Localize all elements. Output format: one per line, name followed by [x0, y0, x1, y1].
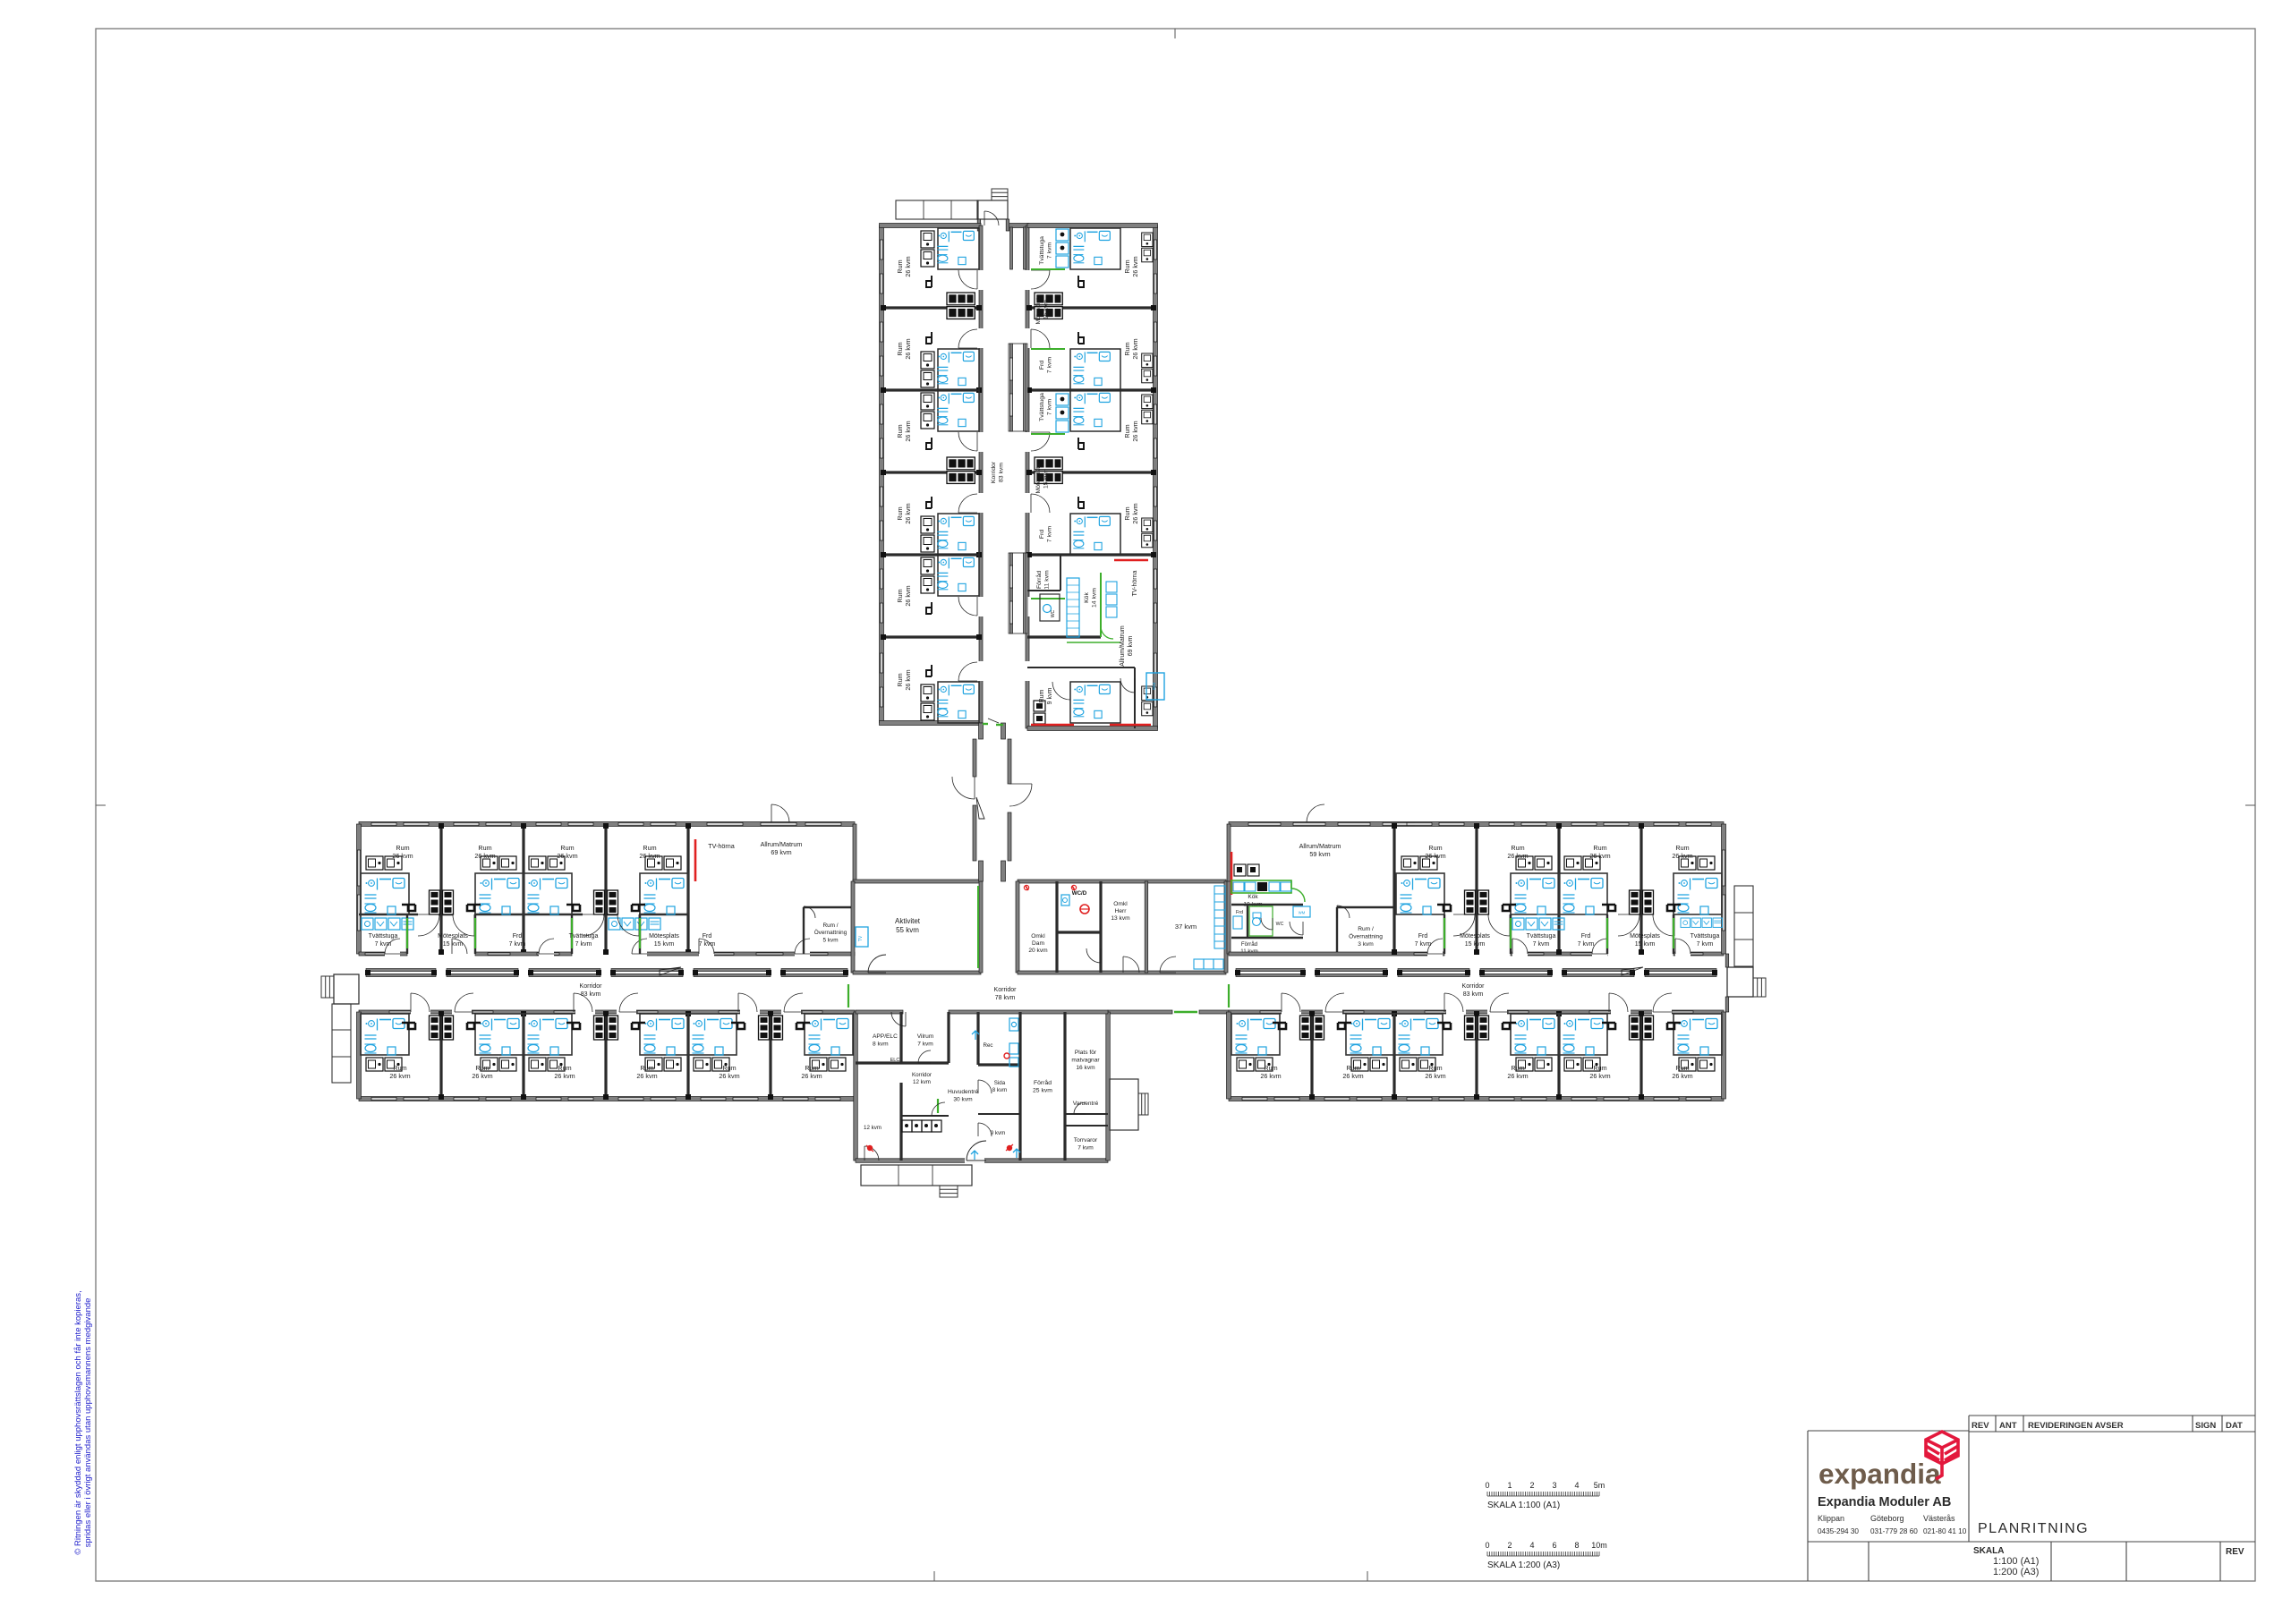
- svg-text:Omkl: Omkl: [1031, 933, 1045, 940]
- svg-text:Frd: Frd: [1581, 933, 1591, 940]
- svg-text:Rum: Rum: [560, 844, 574, 852]
- svg-text:8: 8: [1574, 1541, 1579, 1550]
- svg-text:Herr: Herr: [1115, 908, 1128, 914]
- svg-text:Korridor: Korridor: [994, 987, 1018, 993]
- svg-text:2: 2: [1507, 1541, 1512, 1550]
- svg-text:WC: WC: [1051, 609, 1056, 617]
- svg-text:Plats för: Plats för: [1075, 1050, 1097, 1056]
- svg-text:Rum: Rum: [896, 589, 904, 602]
- svg-text:83 kvm: 83 kvm: [581, 991, 601, 998]
- svg-text:15 kvm: 15 kvm: [1635, 941, 1656, 948]
- svg-text:Mötesplats: Mötesplats: [1460, 933, 1490, 940]
- svg-text:26 kvm: 26 kvm: [904, 256, 912, 276]
- svg-text:Rum: Rum: [1428, 1064, 1442, 1072]
- svg-text:Rum: Rum: [640, 1064, 653, 1072]
- svg-text:Torrvaror: Torrvaror: [1074, 1137, 1098, 1144]
- svg-text:26 kvm: 26 kvm: [1589, 852, 1610, 860]
- svg-text:15 kvm: 15 kvm: [654, 941, 675, 948]
- svg-text:7 kvm: 7 kvm: [1047, 399, 1053, 415]
- svg-text:Mötesplats: Mötesplats: [1035, 294, 1042, 324]
- svg-text:26 kvm: 26 kvm: [392, 852, 413, 860]
- svg-text:Förråd: Förråd: [1034, 1079, 1052, 1086]
- svg-text:26 kvm: 26 kvm: [1342, 1072, 1363, 1080]
- svg-text:Vilrum: Vilrum: [917, 1033, 934, 1040]
- svg-text:26 kvm: 26 kvm: [636, 1072, 657, 1080]
- svg-text:26 kvm: 26 kvm: [554, 1072, 575, 1080]
- svg-text:Rum: Rum: [1123, 342, 1131, 355]
- svg-text:Allrum/Matrum: Allrum/Matrum: [1120, 625, 1126, 667]
- svg-text:Varuentré: Varuentré: [1073, 1101, 1099, 1107]
- svg-text:26 kvm: 26 kvm: [1131, 338, 1139, 359]
- svg-text:26 kvm: 26 kvm: [389, 1072, 410, 1080]
- svg-text:Korridor: Korridor: [1462, 983, 1486, 990]
- svg-text:30 kvm: 30 kvm: [953, 1097, 973, 1103]
- svg-text:WM: WM: [1299, 911, 1306, 915]
- svg-text:SKALA 1:100 (A1): SKALA 1:100 (A1): [1487, 1501, 1560, 1510]
- svg-text:Rum: Rum: [896, 342, 904, 355]
- svg-text:Rum: Rum: [1511, 844, 1524, 852]
- svg-text:Rec: Rec: [983, 1042, 992, 1049]
- svg-text:SKALA: SKALA: [1973, 1546, 2004, 1556]
- svg-text:Rum: Rum: [396, 844, 409, 852]
- svg-text:83 kvm: 83 kvm: [999, 463, 1005, 482]
- svg-text:Korridor: Korridor: [991, 461, 997, 483]
- svg-text:3 kvm: 3 kvm: [1358, 941, 1374, 948]
- svg-text:10m: 10m: [1591, 1541, 1607, 1550]
- svg-text:Förråd: Förråd: [1241, 941, 1258, 948]
- svg-text:WC/D: WC/D: [1072, 890, 1087, 897]
- svg-text:1: 1: [1507, 1481, 1512, 1490]
- svg-text:Rum: Rum: [1123, 506, 1131, 520]
- svg-text:15 kvm: 15 kvm: [1043, 300, 1050, 319]
- svg-text:26 kvm: 26 kvm: [1425, 852, 1445, 860]
- svg-text:26 kvm: 26 kvm: [557, 852, 577, 860]
- svg-text:Allrum/Matrum: Allrum/Matrum: [1299, 842, 1341, 850]
- svg-text:25 kvm: 25 kvm: [1033, 1088, 1052, 1094]
- svg-text:Rum: Rum: [478, 844, 491, 852]
- svg-text:0: 0: [1485, 1541, 1489, 1550]
- svg-text:Frd: Frd: [1418, 933, 1428, 940]
- svg-text:26 kvm: 26 kvm: [904, 421, 912, 441]
- svg-text:15 kvm: 15 kvm: [443, 941, 464, 948]
- svg-text:4: 4: [1574, 1481, 1579, 1490]
- svg-text:Aktivitet: Aktivitet: [895, 917, 921, 925]
- svg-text:26 kvm: 26 kvm: [1672, 852, 1692, 860]
- svg-text:12 kvm: 12 kvm: [864, 1125, 881, 1131]
- svg-text:Expandia Moduler AB: Expandia Moduler AB: [1818, 1495, 1951, 1509]
- svg-text:Rum: Rum: [1675, 844, 1689, 852]
- svg-text:REV: REV: [1972, 1421, 1989, 1431]
- svg-text:Rum: Rum: [896, 506, 904, 520]
- svg-text:031-779 28 60: 031-779 28 60: [1870, 1527, 1918, 1535]
- svg-text:26 kvm: 26 kvm: [719, 1072, 739, 1080]
- svg-text:14 kvm: 14 kvm: [1092, 588, 1098, 608]
- svg-text:26 kvm: 26 kvm: [1131, 421, 1139, 441]
- svg-text:2: 2: [1529, 1481, 1534, 1490]
- svg-text:Tvättstuga: Tvättstuga: [1039, 236, 1045, 265]
- svg-text:REV: REV: [2226, 1547, 2244, 1557]
- svg-text:Rum: Rum: [1593, 844, 1606, 852]
- svg-text:TV-hörna: TV-hörna: [1132, 570, 1138, 596]
- svg-text:Rum: Rum: [1346, 1064, 1359, 1072]
- svg-text:26 kvm: 26 kvm: [1131, 256, 1139, 276]
- svg-text:7 kvm: 7 kvm: [1077, 1145, 1094, 1152]
- svg-text:Frd: Frd: [1236, 910, 1243, 915]
- svg-text:37 kvm: 37 kvm: [1175, 923, 1197, 931]
- svg-text:3: 3: [1552, 1481, 1556, 1490]
- svg-text:Rum: Rum: [896, 424, 904, 438]
- svg-text:Tvättstuga: Tvättstuga: [569, 933, 599, 940]
- svg-text:26 kvm: 26 kvm: [1425, 1072, 1445, 1080]
- svg-text:26 kvm: 26 kvm: [904, 585, 912, 606]
- svg-text:7 kvm: 7 kvm: [1047, 526, 1053, 542]
- svg-text:SIGN: SIGN: [2195, 1421, 2216, 1431]
- svg-text:11 kvm: 11 kvm: [1044, 570, 1051, 590]
- svg-text:Rum: Rum: [1511, 1064, 1524, 1072]
- svg-text:6: 6: [1552, 1541, 1556, 1550]
- svg-text:69 kvm: 69 kvm: [1128, 636, 1134, 657]
- svg-text:TV-hörna: TV-hörna: [708, 842, 735, 850]
- svg-text:Frd: Frd: [1039, 361, 1045, 370]
- svg-text:Rum: Rum: [896, 259, 904, 273]
- svg-text:Sida: Sida: [994, 1080, 1006, 1086]
- svg-text:Rum /: Rum /: [822, 923, 838, 929]
- svg-text:Rum: Rum: [1428, 844, 1442, 852]
- svg-text:Rum: Rum: [805, 1064, 818, 1072]
- svg-text:9 kvm: 9 kvm: [991, 1130, 1006, 1136]
- svg-text:Rum /: Rum /: [1358, 926, 1374, 932]
- svg-text:DAT: DAT: [2226, 1421, 2243, 1431]
- svg-text:26 kvm: 26 kvm: [1131, 503, 1139, 523]
- svg-text:7 kvm: 7 kvm: [1047, 357, 1053, 373]
- svg-text:Göteborg: Göteborg: [1870, 1514, 1904, 1523]
- svg-text:15 kvm: 15 kvm: [1043, 469, 1050, 489]
- svg-text:Frd: Frd: [513, 933, 523, 940]
- svg-text:7 kvm: 7 kvm: [699, 941, 716, 948]
- svg-text:9 kvm: 9 kvm: [1047, 687, 1053, 704]
- svg-text:5m: 5m: [1594, 1481, 1605, 1490]
- svg-text:Klippan: Klippan: [1818, 1514, 1844, 1523]
- svg-text:Mötesplats: Mötesplats: [438, 933, 468, 940]
- svg-text:Korridor: Korridor: [580, 983, 603, 990]
- svg-text:83 kvm: 83 kvm: [1463, 991, 1484, 998]
- svg-text:Rum: Rum: [722, 1064, 736, 1072]
- svg-text:Rum: Rum: [1675, 1064, 1689, 1072]
- svg-text:8 kvm: 8 kvm: [873, 1042, 889, 1048]
- svg-text:7 kvm: 7 kvm: [1697, 941, 1714, 948]
- svg-text:Mötesplats: Mötesplats: [1035, 463, 1042, 493]
- svg-text:Rum: Rum: [1593, 1064, 1606, 1072]
- svg-text:15 kvm: 15 kvm: [1465, 941, 1486, 948]
- svg-text:7 kvm: 7 kvm: [1415, 941, 1432, 948]
- svg-text:Västerås: Västerås: [1923, 1514, 1955, 1523]
- svg-text:Allrum/Matrum: Allrum/Matrum: [761, 840, 803, 848]
- svg-text:7 kvm: 7 kvm: [1047, 242, 1053, 259]
- svg-text:16 kvm: 16 kvm: [1076, 1065, 1095, 1071]
- svg-text:Tvättstuga: Tvättstuga: [1691, 933, 1720, 940]
- svg-text:26 kvm: 26 kvm: [1589, 1072, 1610, 1080]
- svg-text:© Ritningen är skyddad enligt: © Ritningen är skyddad enligt upphovsrät…: [73, 1290, 83, 1554]
- svg-text:7 kvm: 7 kvm: [1533, 941, 1550, 948]
- svg-text:69 kvm: 69 kvm: [771, 848, 791, 856]
- svg-text:Förråd: Förråd: [1035, 571, 1043, 589]
- svg-text:26 kvm: 26 kvm: [1672, 1072, 1692, 1080]
- svg-text:13 kvm: 13 kvm: [1111, 915, 1130, 922]
- svg-text:26 kvm: 26 kvm: [904, 503, 912, 523]
- svg-text:PLANRITNING: PLANRITNING: [1978, 1521, 2089, 1536]
- svg-text:26 kvm: 26 kvm: [474, 852, 495, 860]
- svg-text:ANT: ANT: [1999, 1421, 2017, 1431]
- svg-text:26 kvm: 26 kvm: [1507, 852, 1528, 860]
- svg-text:SKALA 1:200 (A3): SKALA 1:200 (A3): [1487, 1560, 1560, 1570]
- svg-text:26 kvm: 26 kvm: [801, 1072, 822, 1080]
- svg-text:Korridor: Korridor: [912, 1072, 932, 1078]
- svg-text:Huvudentré: Huvudentré: [948, 1089, 978, 1095]
- svg-text:26 kvm: 26 kvm: [472, 1072, 492, 1080]
- svg-text:26 kvm: 26 kvm: [904, 338, 912, 359]
- svg-text:8 kvm: 8 kvm: [992, 1087, 1008, 1093]
- svg-text:Rum: Rum: [1264, 1064, 1277, 1072]
- svg-text:7 kvm: 7 kvm: [1578, 941, 1595, 948]
- svg-text:26 kvm: 26 kvm: [1507, 1072, 1528, 1080]
- svg-text:Tvättstuga: Tvättstuga: [1039, 393, 1045, 421]
- svg-text:Kök: Kök: [1248, 894, 1258, 900]
- svg-text:Mötesplats: Mötesplats: [1630, 933, 1660, 940]
- svg-text:7 kvm: 7 kvm: [375, 941, 392, 948]
- svg-text:TV: TV: [858, 935, 864, 941]
- svg-text:55 kvm: 55 kvm: [896, 926, 919, 934]
- svg-text:021-80 41 10: 021-80 41 10: [1923, 1527, 1967, 1535]
- svg-text:Omkl: Omkl: [1113, 901, 1128, 907]
- svg-text:Kök: Kök: [1084, 592, 1090, 603]
- svg-text:4: 4: [1529, 1541, 1534, 1550]
- svg-text:Rum: Rum: [1123, 424, 1131, 438]
- svg-text:Övernattning: Övernattning: [814, 929, 847, 936]
- svg-text:0: 0: [1485, 1481, 1489, 1490]
- svg-text:Tvättstuga: Tvättstuga: [1527, 933, 1556, 940]
- svg-text:Rum: Rum: [475, 1064, 489, 1072]
- svg-text:Rum: Rum: [393, 1064, 406, 1072]
- svg-text:matvagnar: matvagnar: [1071, 1058, 1100, 1064]
- svg-text:59 kvm: 59 kvm: [1309, 850, 1330, 858]
- svg-text:20 kvm: 20 kvm: [1028, 948, 1048, 954]
- svg-text:7 kvm: 7 kvm: [575, 941, 592, 948]
- svg-text:12 kvm: 12 kvm: [913, 1079, 931, 1085]
- svg-text:Frd: Frd: [703, 933, 712, 940]
- svg-text:7 kvm: 7 kvm: [917, 1042, 933, 1048]
- svg-text:expandia: expandia: [1818, 1458, 1941, 1490]
- svg-text:WM: WM: [1152, 683, 1156, 690]
- svg-text:APP/ELC: APP/ELC: [873, 1033, 898, 1040]
- svg-text:26 kvm: 26 kvm: [639, 852, 660, 860]
- svg-text:0435-294 30: 0435-294 30: [1818, 1527, 1859, 1535]
- svg-text:spridas eller i övrigt använda: spridas eller i övrigt användas utan upp…: [83, 1298, 93, 1548]
- svg-text:Frd: Frd: [1039, 530, 1045, 539]
- svg-text:Mötesplats: Mötesplats: [649, 933, 679, 940]
- svg-text:REVIDERINGEN AVSER: REVIDERINGEN AVSER: [2028, 1421, 2124, 1431]
- svg-text:78 kvm: 78 kvm: [995, 995, 1016, 1001]
- svg-text:Rum: Rum: [643, 844, 656, 852]
- svg-text:ELC: ELC: [890, 1058, 900, 1063]
- svg-text:1:200 (A3): 1:200 (A3): [1993, 1567, 2039, 1577]
- svg-text:5 kvm: 5 kvm: [822, 937, 838, 943]
- svg-text:26 kvm: 26 kvm: [904, 669, 912, 690]
- svg-text:Tvättstuga: Tvättstuga: [369, 933, 398, 940]
- svg-text:Rum: Rum: [558, 1064, 571, 1072]
- svg-text:Rum: Rum: [1123, 259, 1131, 273]
- svg-text:Övernattning: Övernattning: [1349, 933, 1383, 940]
- svg-text:7 kvm: 7 kvm: [509, 941, 526, 948]
- svg-text:WC: WC: [1276, 922, 1284, 927]
- svg-text:Rum: Rum: [896, 673, 904, 686]
- svg-text:Dam: Dam: [1032, 940, 1044, 947]
- svg-text:26 kvm: 26 kvm: [1260, 1072, 1281, 1080]
- svg-text:1:100 (A1): 1:100 (A1): [1993, 1556, 2039, 1567]
